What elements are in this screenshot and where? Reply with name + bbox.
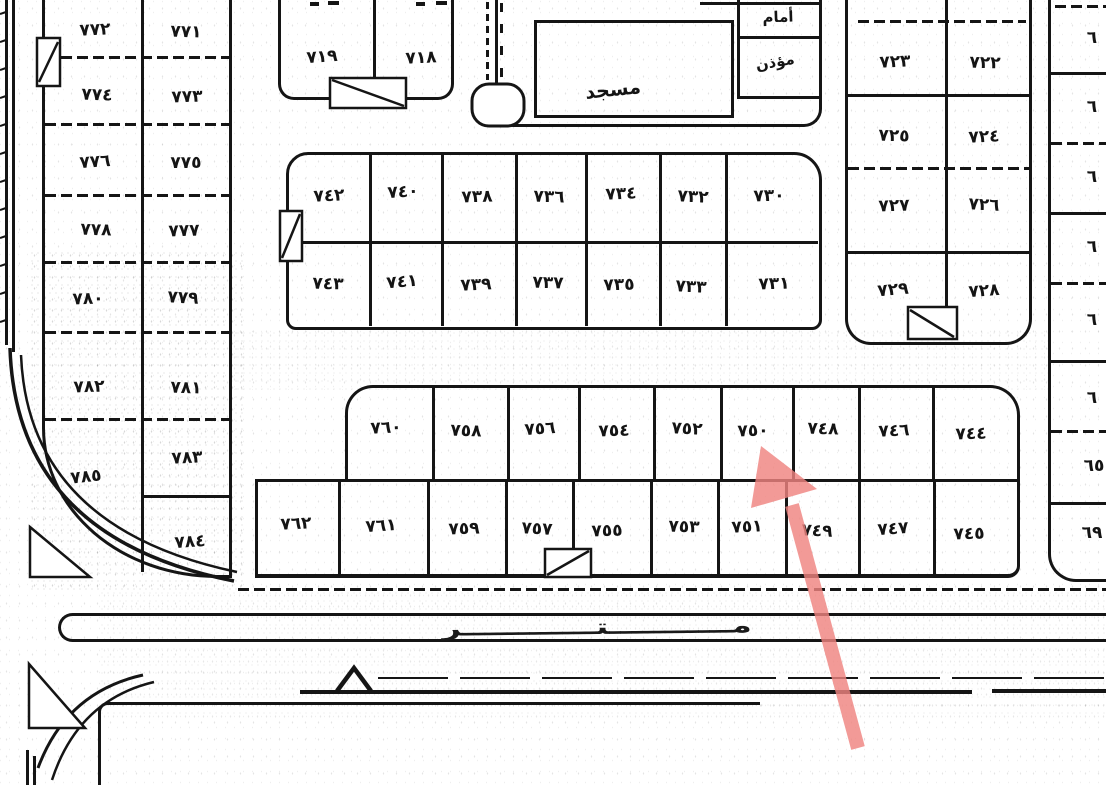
plot-label-744: ٧٤٤ — [955, 423, 987, 444]
col-line — [653, 388, 656, 481]
plot-label-742: ٧٤٢ — [313, 185, 345, 207]
plot-label-731: ٧٣١ — [758, 273, 790, 294]
row-line — [848, 167, 1029, 170]
plot-label-727: ٧٢٧ — [878, 195, 910, 216]
corner-island — [30, 527, 90, 577]
west-road-inner-edge — [12, 0, 15, 352]
road-edge — [33, 756, 36, 785]
plot-label-718: ٧١٨ — [405, 47, 437, 69]
plot-label-725: ٧٢٥ — [878, 125, 910, 146]
plot-label-749: ٧٤٩ — [801, 520, 833, 542]
plot-label-751: ٧٥١ — [731, 516, 763, 538]
plot-label-735: ٧٣٥ — [603, 274, 635, 295]
plot-label-739: ٧٣٩ — [460, 274, 492, 296]
plot-label-740: ٧٤٠ — [387, 181, 419, 203]
row-line — [1051, 360, 1106, 363]
plot-label-785: ٧٨٥ — [69, 465, 102, 488]
col-line — [659, 155, 662, 326]
muezzin-cell-line — [737, 96, 822, 99]
row-line — [1051, 142, 1106, 145]
plot-label-729: ٧٢٩ — [877, 279, 910, 302]
col-line — [427, 481, 430, 574]
plot-label-746: ٧٤٦ — [878, 420, 910, 442]
plot-label-partial: ٦ — [1087, 310, 1097, 330]
col-line — [585, 155, 588, 326]
row-line — [1051, 430, 1106, 433]
plot-label-734: ٧٣٤ — [605, 183, 637, 205]
plot-map-scan: ٧٧٢ ٧٧١ ٧٧٤ ٧٧٣ ٧٧٦ ٧٧٥ ٧٧٨ ٧٧٧ ٧٨٠ ٧٧٩ … — [0, 0, 1106, 785]
plot-label-partial: ٦٩ — [1082, 523, 1103, 543]
plot-label-748: ٧٤٨ — [807, 418, 839, 439]
row-line — [858, 20, 1026, 23]
plot-label-743: ٧٤٣ — [312, 273, 344, 294]
plot-label-747: ٧٤٧ — [877, 518, 909, 540]
col-line — [515, 155, 518, 326]
mosque-building — [534, 20, 734, 118]
row-line — [848, 251, 1029, 254]
plot-label-784: ٧٨٤ — [174, 531, 206, 553]
plot-label-738: ٧٣٨ — [461, 186, 493, 207]
east-edge-strip-block — [1048, 0, 1106, 582]
row-line — [141, 495, 229, 498]
plot-label-partial: ٦ — [1087, 237, 1097, 257]
middle-residential-block — [286, 152, 822, 330]
col-line — [507, 388, 510, 481]
plot-label-partial: ٦ — [1087, 28, 1097, 48]
east-block-divider — [945, 0, 948, 339]
col-line — [858, 388, 861, 481]
plot-label-724: ٧٢٤ — [968, 126, 1000, 148]
plot-label-777: ٧٧٧ — [168, 220, 200, 241]
plot-label-775: ٧٧٥ — [170, 153, 201, 173]
plot-label-760: ٧٦٠ — [370, 417, 402, 439]
col-line — [785, 481, 788, 574]
row-line — [45, 56, 229, 59]
plot-label-750: ٧٥٠ — [737, 420, 769, 441]
row-line — [1051, 212, 1106, 215]
row-line — [1051, 282, 1106, 285]
plot-label-772: ٧٧٢ — [79, 19, 111, 41]
plot-label-754: ٧٥٤ — [598, 420, 630, 441]
plot-label-partial: ٦ — [1087, 388, 1097, 408]
row-line — [45, 418, 229, 421]
plot-label-719: ٧١٩ — [306, 46, 338, 68]
col-line — [792, 388, 795, 481]
mosque-services-divider — [737, 0, 740, 98]
plot-label-779: ٧٧٩ — [167, 287, 199, 309]
plot-label-730: ٧٣٠ — [753, 185, 785, 206]
left-residential-block — [42, 0, 232, 578]
plot-label-partial: ٦٥ — [1084, 456, 1105, 476]
plot-label-partial: ٦ — [1087, 167, 1097, 187]
plot-label-726: ٧٢٦ — [968, 194, 1000, 216]
plot-label-783: ٧٨٣ — [171, 447, 203, 469]
corner-island — [29, 664, 85, 728]
plot-label-758: ٧٥٨ — [450, 420, 482, 441]
north-block-divider — [373, 0, 376, 94]
plot-label-745: ٧٤٥ — [953, 523, 985, 544]
plot-label-776: ٧٧٦ — [79, 151, 111, 173]
plot-label-782: ٧٨٢ — [73, 376, 105, 397]
east-residential-block — [845, 0, 1032, 345]
plot-label-771: ٧٧١ — [170, 21, 202, 42]
plot-label-757: ٧٥٧ — [521, 518, 553, 540]
col-line — [858, 481, 861, 574]
road-line — [992, 689, 1106, 693]
plot-label-partial: ٦ — [1087, 97, 1097, 117]
plot-label-753: ٧٥٣ — [668, 516, 700, 537]
col-line — [369, 155, 372, 326]
plot-label-780: ٧٨٠ — [72, 288, 104, 309]
row-line — [45, 194, 229, 197]
west-road-outer-edge — [5, 0, 8, 345]
col-line — [572, 481, 575, 574]
col-line — [441, 155, 444, 326]
plot-label-732: ٧٣٢ — [677, 186, 709, 208]
street-name-script: مـــــــــــتــــــــــــر — [442, 613, 752, 640]
chevron-mark — [337, 668, 371, 691]
col-line — [933, 481, 936, 574]
row-line — [45, 123, 229, 126]
plot-label-728: ٧٢٨ — [968, 280, 1000, 302]
plot-label-759: ٧٥٩ — [448, 518, 480, 539]
plot-label-773: ٧٧٣ — [171, 86, 203, 107]
col-line — [932, 388, 935, 481]
imam-room-label: أمام — [762, 7, 794, 26]
plot-label-762: ٧٦٢ — [280, 513, 312, 535]
col-line — [650, 481, 653, 574]
plot-label-781: ٧٨١ — [170, 377, 202, 398]
plot-label-723: ٧٢٣ — [879, 51, 911, 73]
col-line — [338, 481, 341, 574]
col-line — [432, 388, 435, 481]
scan-noise-road — [100, 590, 1106, 720]
road-edge-south — [238, 588, 1106, 591]
col-line — [578, 388, 581, 481]
col-line — [720, 388, 723, 481]
mosque-top-edge — [700, 2, 820, 5]
row-line — [1051, 72, 1106, 75]
road-line — [378, 677, 1106, 679]
plot-label-756: ٧٥٦ — [524, 418, 556, 440]
plot-boundary-dashed — [486, 2, 489, 80]
plot-label-737: ٧٣٧ — [532, 272, 564, 293]
row-line — [45, 261, 229, 264]
row-line — [45, 331, 229, 334]
plot-label-778: ٧٧٨ — [80, 219, 112, 240]
plot-label-736: ٧٣٦ — [533, 186, 565, 207]
col-line — [725, 155, 728, 326]
plot-label-752: ٧٥٢ — [671, 418, 703, 440]
row-line — [1051, 502, 1106, 505]
next-block-corner — [98, 702, 760, 785]
row-line — [848, 94, 1029, 97]
plot-label-741: ٧٤١ — [386, 271, 419, 294]
col-line — [717, 481, 720, 574]
row-line — [1055, 5, 1106, 8]
plot-label-722: ٧٢٢ — [969, 52, 1001, 73]
plot-label-774: ٧٧٤ — [81, 84, 113, 105]
road-line — [300, 690, 972, 694]
left-block-column-divider — [141, 0, 144, 572]
imam-cell-line — [737, 36, 822, 39]
plot-label-761: ٧٦١ — [365, 515, 397, 537]
plot-label-755: ٧٥٥ — [591, 520, 623, 541]
plot-label-733: ٧٣٣ — [675, 276, 707, 298]
road-edge — [26, 750, 29, 785]
col-line — [505, 481, 508, 574]
